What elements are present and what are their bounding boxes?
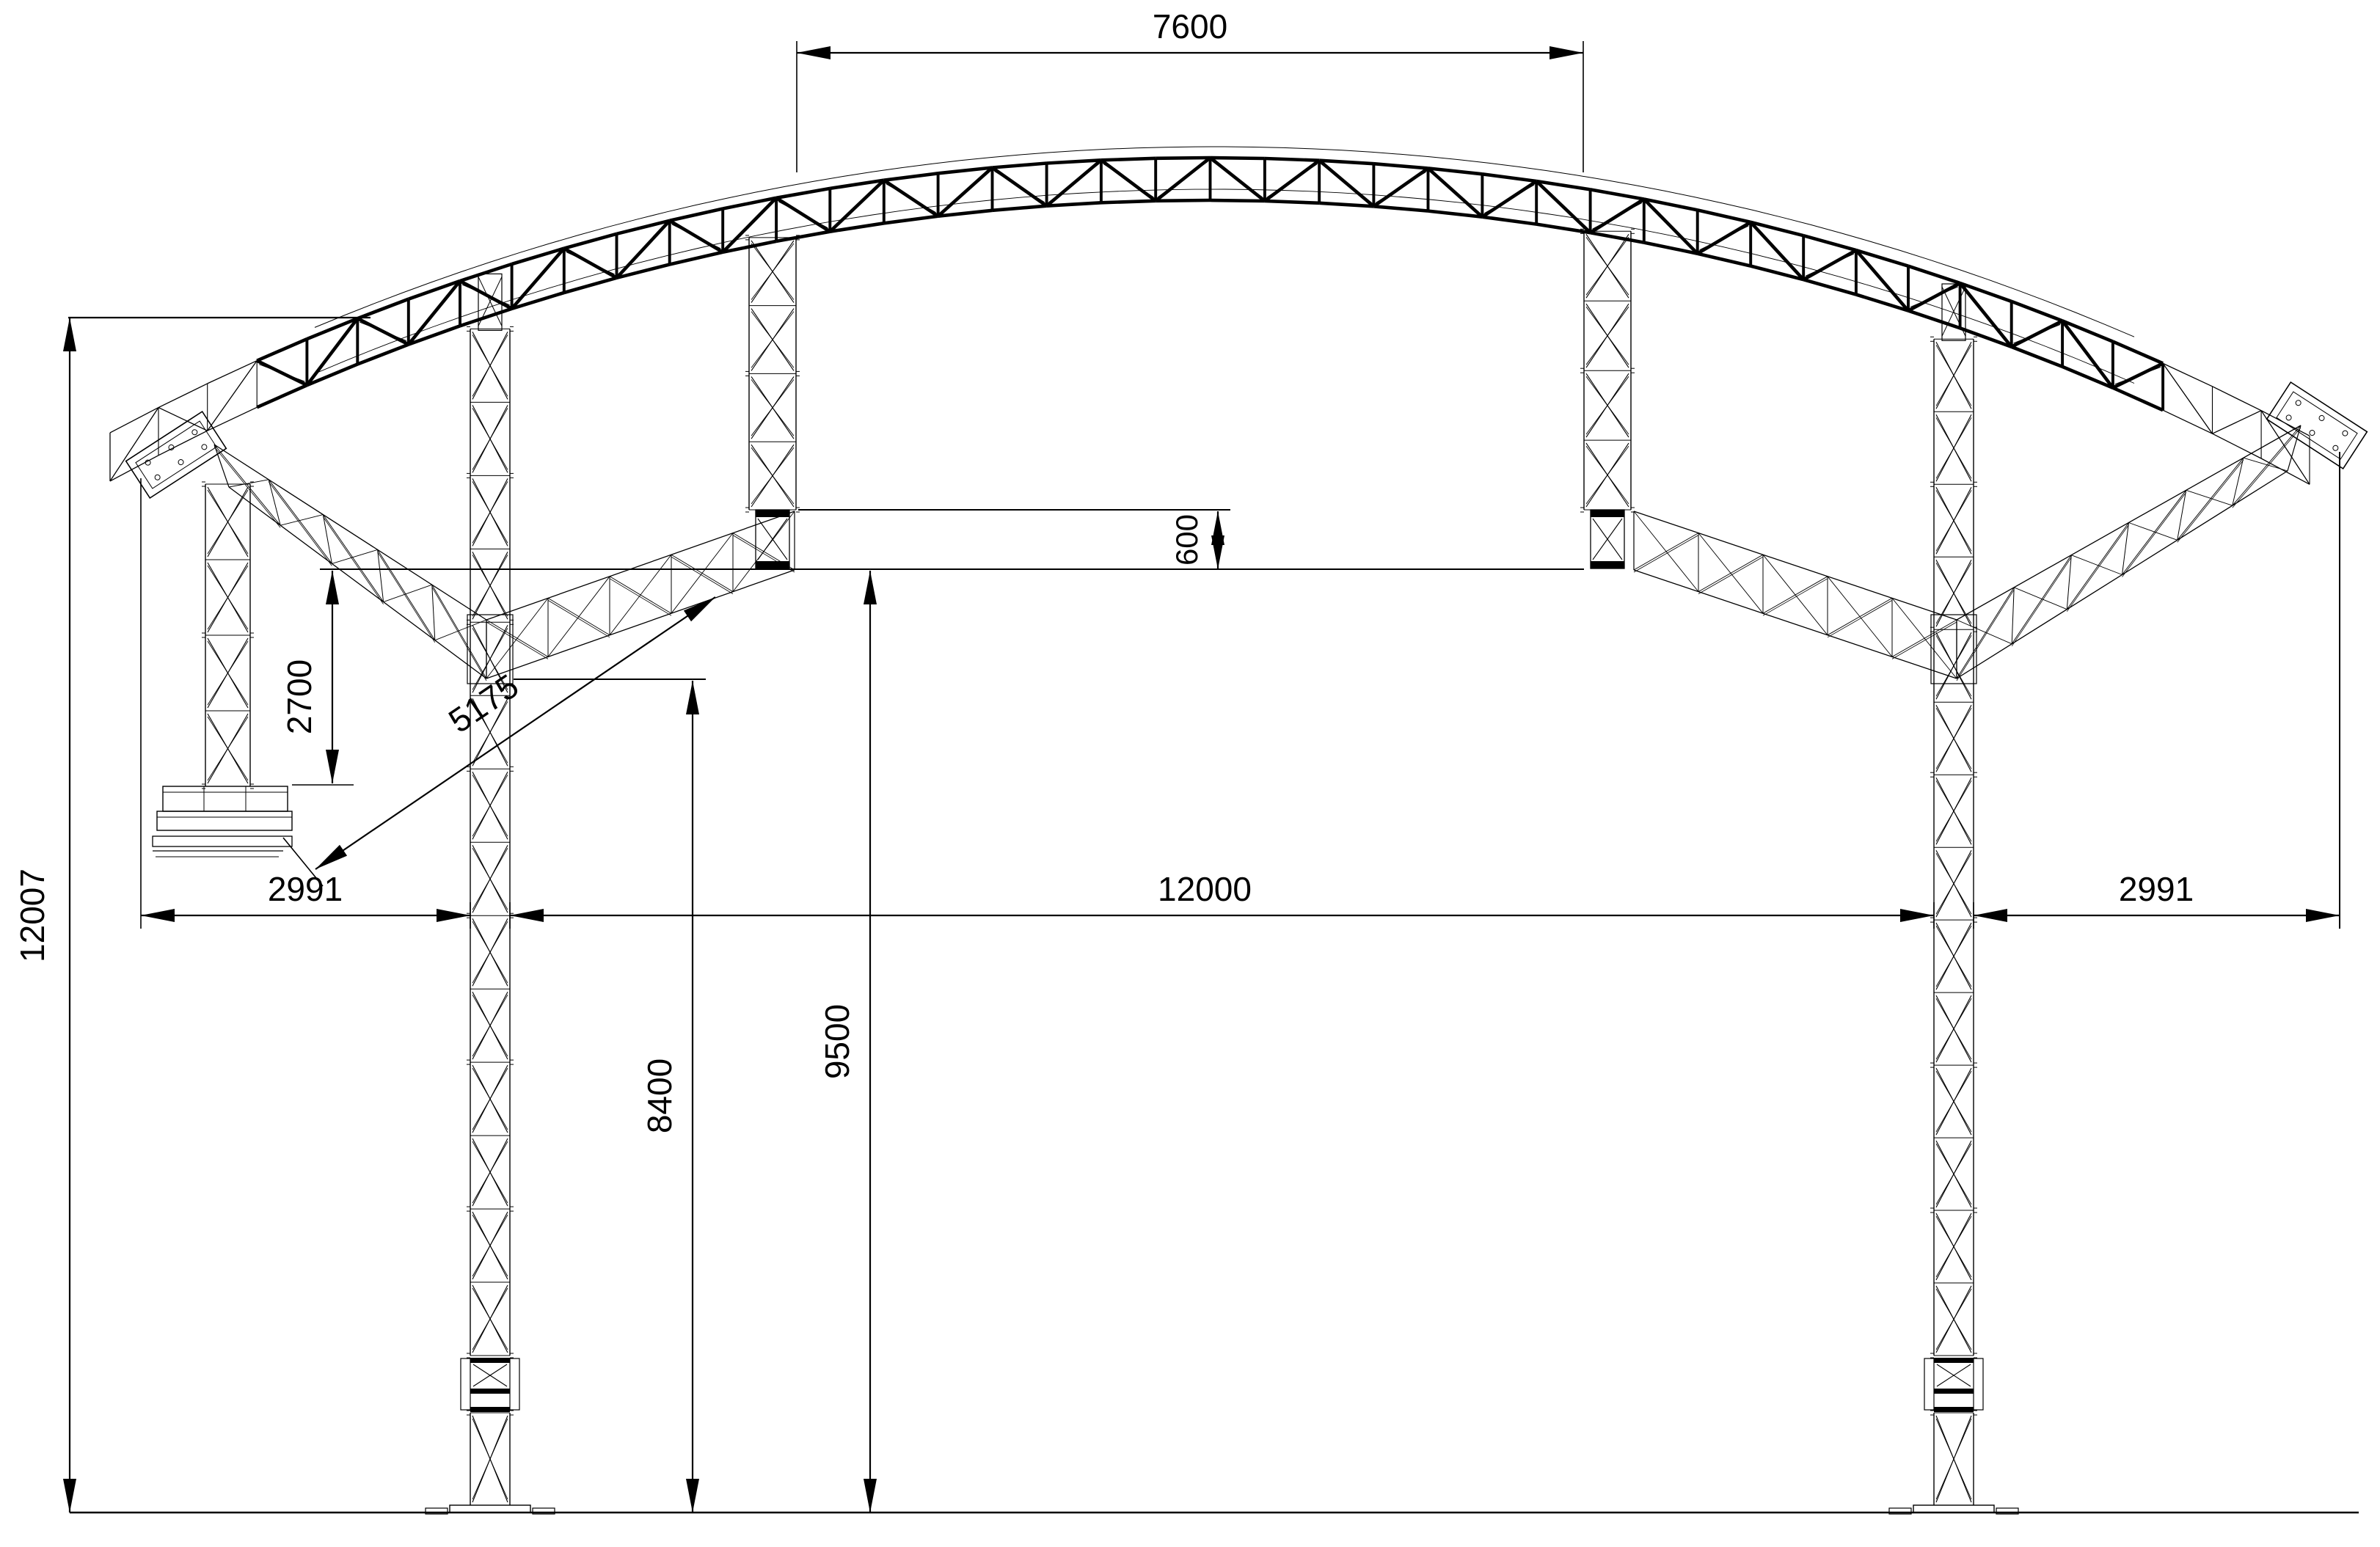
dimension-label: 2700 bbox=[280, 659, 318, 734]
left-main-tower-base-section bbox=[467, 1411, 514, 1505]
dimension-label: 2991 bbox=[2119, 870, 2194, 908]
left-main-tower-upper bbox=[467, 326, 514, 1358]
dimension-12000: 12000 bbox=[510, 870, 1934, 922]
dimension-2991: 2991 bbox=[1974, 870, 2340, 922]
arch-back-chords bbox=[315, 147, 2134, 384]
dimension-2700: 2700 bbox=[280, 571, 339, 783]
wing-knee-plates bbox=[467, 615, 1976, 684]
right-wing-outer-truss bbox=[1957, 425, 2301, 681]
left-wing-outer-truss bbox=[214, 445, 486, 681]
dimension-12007: 12007 bbox=[13, 318, 76, 1513]
dimension-label: 7600 bbox=[1153, 7, 1227, 45]
right-main-tower-base-section bbox=[1930, 1411, 1977, 1505]
ballast-base bbox=[153, 786, 292, 857]
dimension-8400: 8400 bbox=[640, 681, 699, 1513]
dimension-label: 8400 bbox=[640, 1058, 679, 1133]
dimension-set: 7600120072991120002991600270051758400950… bbox=[13, 7, 2340, 1513]
dimension-label: 9500 bbox=[818, 1004, 856, 1079]
dimension-9500: 9500 bbox=[818, 571, 877, 1513]
dimension-5175: 5175 bbox=[315, 597, 715, 869]
truss-roof-elevation-drawing: 7600120072991120002991600270051758400950… bbox=[0, 0, 2380, 1547]
right-main-tower-upper bbox=[1930, 337, 1977, 1358]
dimension-label: 12000 bbox=[1158, 870, 1252, 908]
dimension-label: 12007 bbox=[13, 868, 51, 962]
right-inner-tower bbox=[1580, 229, 1635, 512]
dimension-600: 600 bbox=[1169, 511, 1224, 569]
right-inner-tower-end-box bbox=[1591, 510, 1624, 568]
dimension-2991: 2991 bbox=[141, 870, 470, 922]
right-arch-end-plate bbox=[2267, 382, 2368, 469]
right-wing-spur-truss bbox=[1634, 511, 1957, 679]
arch-truss bbox=[110, 158, 2310, 484]
left-inner-tower bbox=[745, 235, 800, 512]
left-wing-spur-truss bbox=[486, 511, 795, 679]
left-tower-sleeve-block bbox=[461, 1358, 519, 1412]
dimension-label: 600 bbox=[1169, 514, 1204, 566]
left-outer-hanging-tower bbox=[202, 482, 254, 789]
dimension-label: 2991 bbox=[268, 870, 343, 908]
dimension-7600: 7600 bbox=[797, 7, 1583, 59]
right-tower-sleeve-block bbox=[1924, 1358, 1983, 1412]
dimension-extension-lines bbox=[68, 41, 2340, 929]
drawing-canvas: 7600120072991120002991600270051758400950… bbox=[0, 0, 2380, 1547]
structure bbox=[70, 147, 2367, 1514]
